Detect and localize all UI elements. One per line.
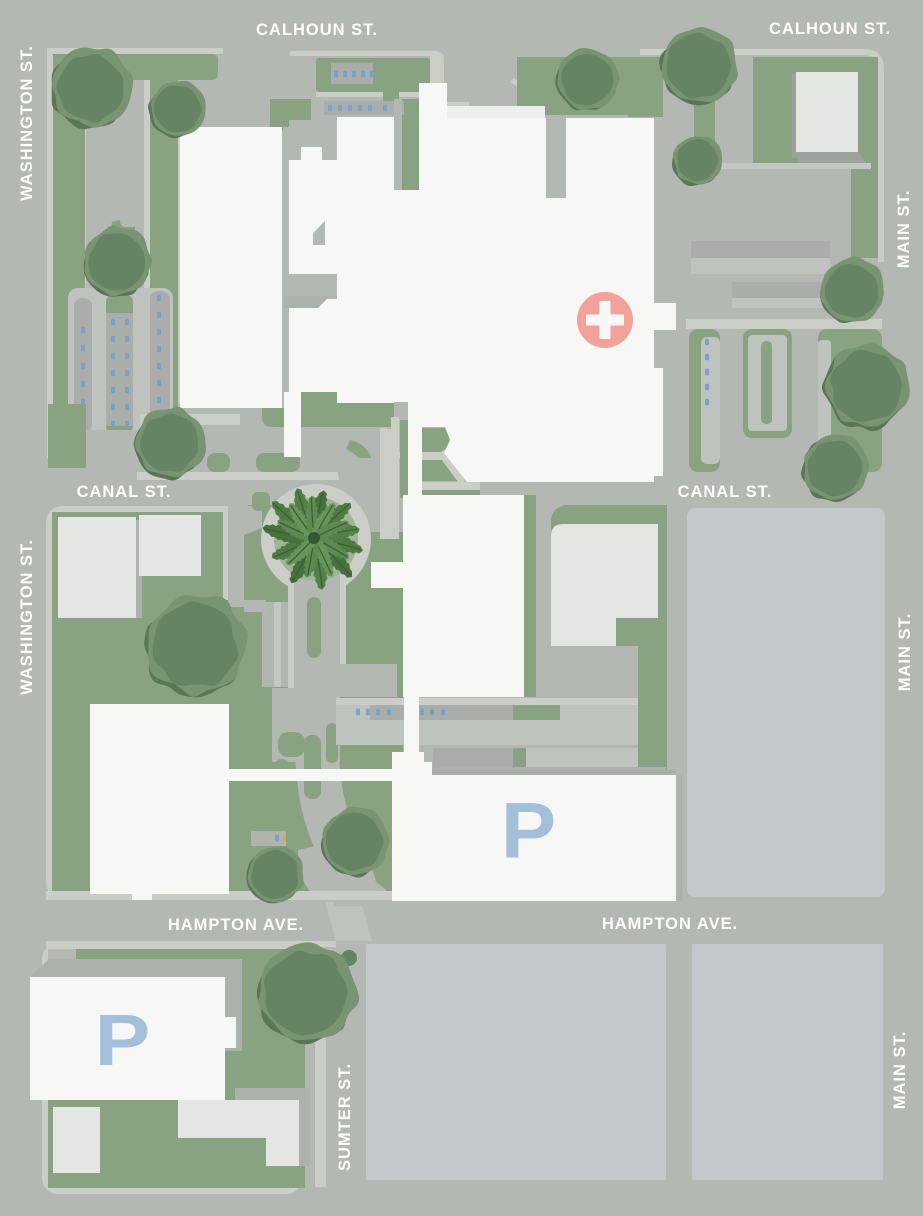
svg-text:MAIN ST.: MAIN ST. [891,1031,909,1110]
svg-text:P: P [95,999,151,1080]
svg-text:MAIN ST.: MAIN ST. [896,613,914,692]
svg-text:CALHOUN ST.: CALHOUN ST. [769,20,891,38]
svg-text:MAIN ST.: MAIN ST. [895,190,913,269]
svg-text:P: P [501,787,556,875]
svg-text:CANAL ST.: CANAL ST. [678,483,773,501]
svg-text:SUMTER ST.: SUMTER ST. [336,1063,354,1171]
svg-text:HAMPTON AVE.: HAMPTON AVE. [168,916,304,934]
svg-text:WASHINGTON ST.: WASHINGTON ST. [18,45,36,201]
svg-text:CANAL ST.: CANAL ST. [77,483,172,501]
svg-text:CALHOUN ST.: CALHOUN ST. [256,21,378,39]
svg-text:HAMPTON AVE.: HAMPTON AVE. [602,915,738,933]
svg-text:WASHINGTON ST.: WASHINGTON ST. [18,539,36,695]
